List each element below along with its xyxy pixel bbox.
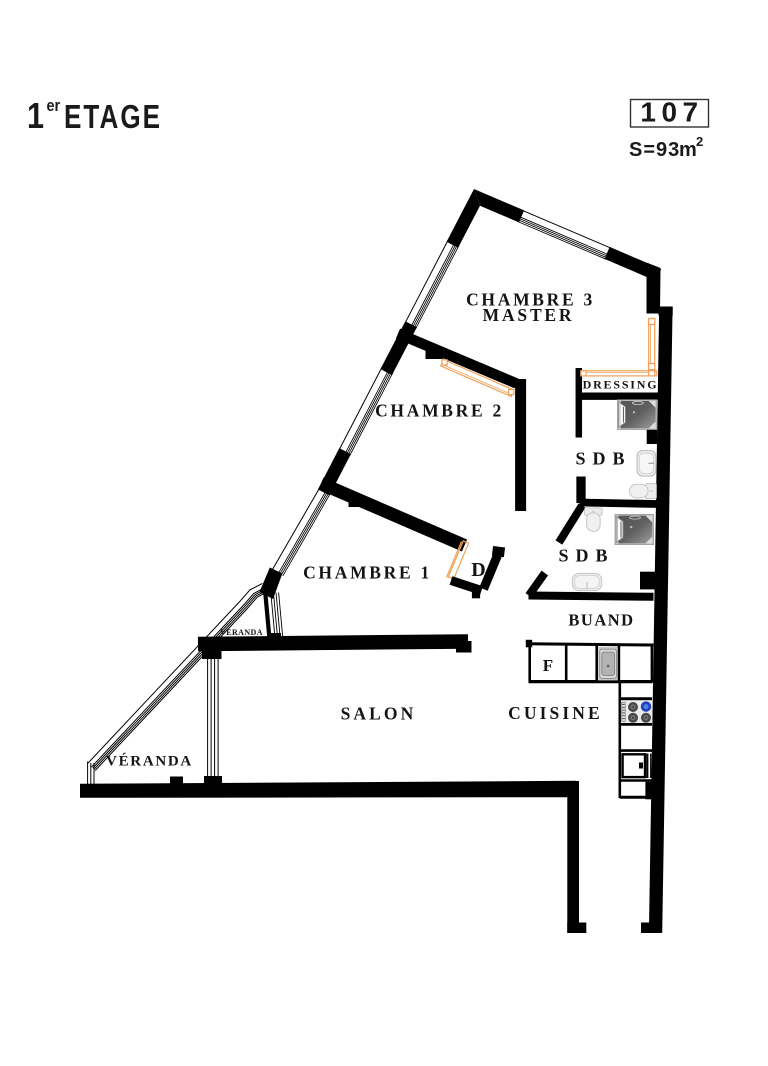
svg-text:m: m bbox=[679, 139, 697, 161]
svg-text:CHAMBRE 2: CHAMBRE 2 bbox=[375, 401, 504, 421]
svg-text:1: 1 bbox=[27, 97, 44, 137]
svg-text:CHAMBRE 1: CHAMBRE 1 bbox=[303, 563, 432, 583]
svg-text:SDB: SDB bbox=[558, 546, 614, 566]
svg-text:SALON: SALON bbox=[341, 704, 417, 724]
svg-text:F: F bbox=[543, 656, 553, 675]
svg-text:DRESSING: DRESSING bbox=[583, 378, 659, 392]
svg-text:VÉRANDA: VÉRANDA bbox=[220, 627, 263, 637]
svg-text:MASTER: MASTER bbox=[483, 305, 575, 325]
svg-text:CUISINE: CUISINE bbox=[508, 703, 603, 723]
svg-text:BUAND: BUAND bbox=[568, 611, 634, 630]
svg-text:er: er bbox=[47, 97, 61, 115]
svg-text:107: 107 bbox=[640, 97, 703, 128]
svg-text:VÉRANDA: VÉRANDA bbox=[106, 753, 193, 770]
svg-text:2: 2 bbox=[696, 134, 703, 149]
svg-text:SDB: SDB bbox=[575, 449, 631, 469]
svg-text:ETAGE: ETAGE bbox=[64, 99, 162, 136]
svg-text:D: D bbox=[471, 559, 485, 581]
svg-text:S=93: S=93 bbox=[629, 139, 680, 161]
